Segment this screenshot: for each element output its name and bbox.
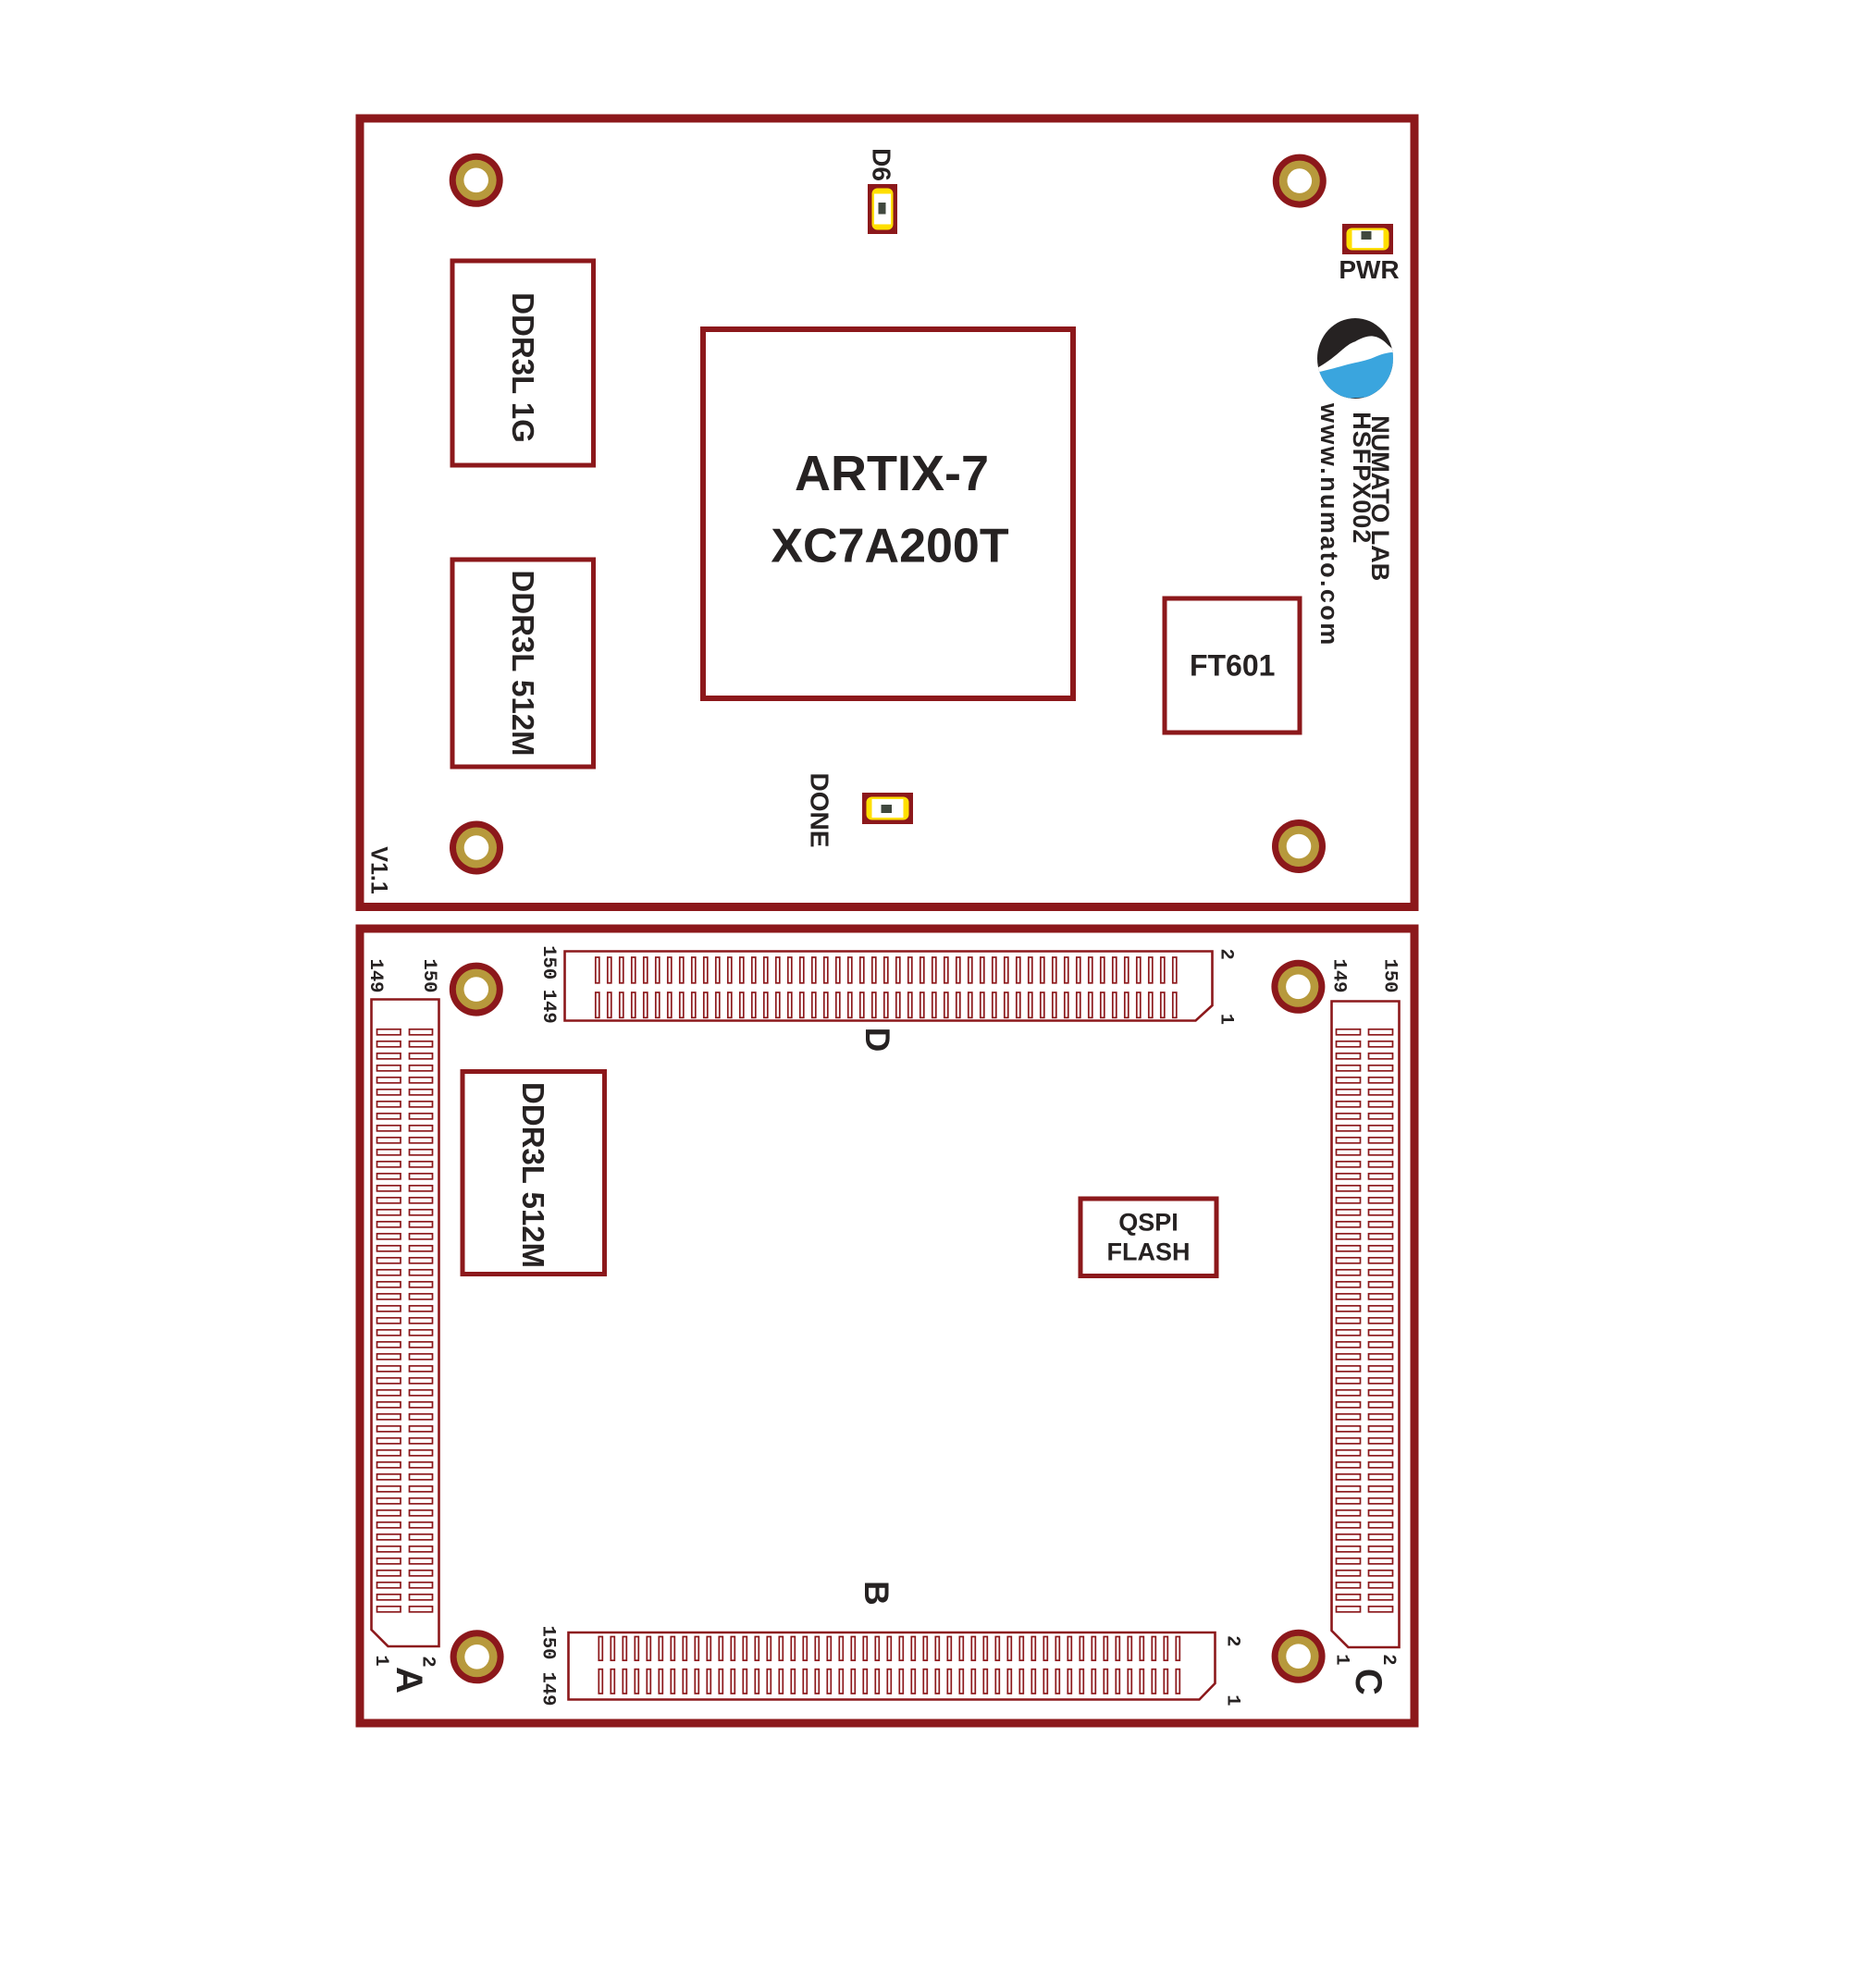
svg-text:150: 150: [537, 945, 559, 979]
svg-text:D: D: [858, 1028, 896, 1053]
svg-text:149: 149: [364, 959, 386, 993]
svg-text:DDR3L 512M: DDR3L 512M: [506, 570, 540, 756]
svg-text:149: 149: [537, 1672, 559, 1706]
svg-text:www.numato.com: www.numato.com: [1315, 402, 1343, 647]
svg-text:149: 149: [1328, 959, 1350, 993]
svg-text:1: 1: [1331, 1654, 1352, 1665]
svg-text:149: 149: [537, 990, 559, 1024]
svg-text:2: 2: [1216, 948, 1237, 959]
svg-text:ARTIX-7: ARTIX-7: [795, 446, 989, 501]
svg-text:D6: D6: [868, 148, 896, 181]
svg-text:FLASH: FLASH: [1107, 1238, 1191, 1266]
svg-text:150: 150: [537, 1626, 559, 1660]
svg-text:1: 1: [370, 1655, 391, 1666]
svg-text:HSFPX002: HSFPX002: [1348, 412, 1376, 544]
svg-text:QSPI: QSPI: [1118, 1209, 1179, 1237]
svg-text:2: 2: [1377, 1654, 1399, 1665]
svg-text:150: 150: [1379, 959, 1401, 993]
svg-text:C: C: [1348, 1669, 1388, 1695]
svg-text:DDR3L 512M: DDR3L 512M: [516, 1082, 550, 1268]
svg-text:FT601: FT601: [1190, 649, 1275, 683]
svg-text:PWR: PWR: [1339, 255, 1399, 284]
svg-text:DONE: DONE: [806, 773, 834, 848]
svg-text:150: 150: [418, 959, 439, 993]
svg-text:1: 1: [1216, 1014, 1237, 1025]
svg-text:1: 1: [1222, 1694, 1243, 1706]
svg-text:DDR3L 1G: DDR3L 1G: [506, 292, 540, 443]
svg-text:V1.1: V1.1: [365, 846, 391, 894]
svg-text:XC7A200T: XC7A200T: [771, 520, 1008, 573]
svg-text:A: A: [389, 1667, 429, 1694]
svg-text:2: 2: [417, 1656, 438, 1667]
svg-text:2: 2: [1222, 1635, 1243, 1646]
svg-text:B: B: [858, 1581, 895, 1606]
